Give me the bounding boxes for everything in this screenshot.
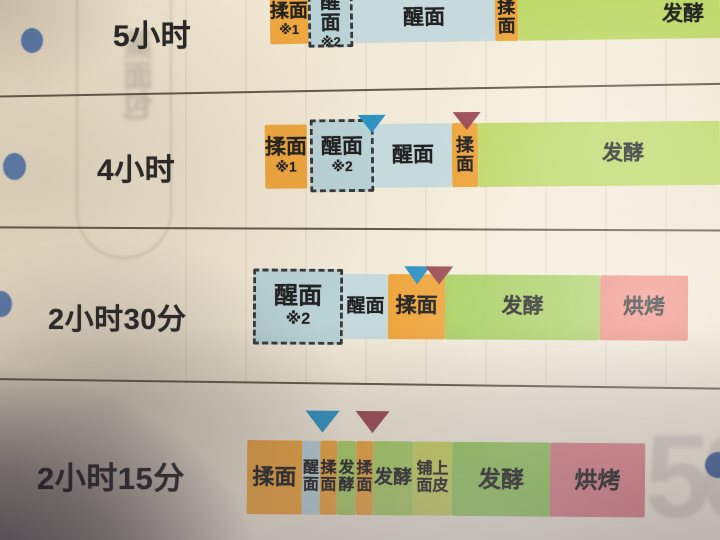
blue-triangle-marker bbox=[305, 411, 339, 433]
segment-knead: 揉 面 bbox=[356, 441, 374, 515]
segment-label: 醒面 bbox=[392, 144, 434, 166]
red-triangle-marker bbox=[355, 411, 389, 433]
segment-label: 烘烤 bbox=[623, 297, 665, 319]
segment-ferment: 发酵 bbox=[445, 274, 600, 340]
segment-knead: 揉面 bbox=[247, 440, 303, 514]
timeline-rows: 5小时揉面※1醒面※2醒面揉 面发酵4小时揉面※1醒面※2醒面揉 面发酵2小时3… bbox=[0, 0, 720, 540]
segment-label: 发酵 bbox=[478, 467, 524, 492]
segment-label: 醒 面 bbox=[303, 461, 319, 495]
segment-label: 揉 面 bbox=[456, 136, 474, 174]
segment-lay-dough-skin: 铺上 面皮 bbox=[413, 441, 453, 515]
segment-rest: 醒面 bbox=[353, 0, 496, 43]
segment-label: 醒面 bbox=[403, 7, 445, 30]
segment-ferment: 发酵 bbox=[452, 442, 551, 517]
blue-triangle-marker bbox=[358, 115, 386, 133]
segment-label: 揉面 bbox=[270, 2, 308, 22]
segment-label: 烘烤 bbox=[574, 468, 620, 493]
segment-knead: 揉 面 bbox=[320, 441, 338, 515]
segment-label: 发 酵 bbox=[338, 461, 354, 495]
segment-knead: 揉 面 bbox=[452, 123, 479, 187]
segment-knead: 揉面※1 bbox=[265, 124, 308, 188]
row-2-hours-30-min-timeline-bar: 醒面※2醒面揉面发酵烘烤 bbox=[0, 272, 720, 341]
segment-label: 揉面 bbox=[265, 137, 307, 159]
segment-label: 揉 面 bbox=[497, 0, 516, 36]
segment-label: 揉面 bbox=[395, 296, 437, 318]
segment-rest: 醒面※2 bbox=[253, 268, 343, 344]
row-5-hours-timeline-bar: 揉面※1醒面※2醒面揉 面发酵 bbox=[0, 0, 720, 48]
segment-knead: 揉 面 bbox=[495, 0, 519, 41]
segment-footnote: ※2 bbox=[321, 34, 341, 51]
red-triangle-marker bbox=[453, 112, 481, 130]
row-2-hours-15-min-timeline-bar: 揉面醒 面揉 面发 酵揉 面发酵铺上 面皮发酵烘烤 bbox=[0, 438, 720, 518]
segment-label: 发酵 bbox=[374, 468, 412, 488]
segment-ferment: 发 酵 bbox=[337, 441, 357, 515]
segment-label: 醒面 bbox=[346, 296, 384, 316]
row-4-hours-timeline-bar: 揉面※1醒面※2醒面揉 面发酵 bbox=[0, 121, 720, 191]
manual-page-photo: 蒸面包 50 5小时揉面※1醒面※2醒面揉 面发酵4小时揉面※1醒面※2醒面揉 … bbox=[0, 0, 720, 540]
segment-label: 发酵 bbox=[501, 296, 543, 318]
segment-label: 醒面 bbox=[311, 0, 351, 35]
segment-label: 揉 面 bbox=[356, 461, 372, 495]
segment-footnote: ※2 bbox=[286, 309, 311, 329]
segment-bake: 烘烤 bbox=[600, 275, 688, 340]
segment-label: 揉面 bbox=[252, 466, 296, 489]
segment-rest: 醒面 bbox=[374, 123, 453, 188]
segment-rest: 醒面 bbox=[343, 274, 388, 339]
segment-rest: 醒 面 bbox=[302, 440, 321, 514]
segment-ferment: 发酵 bbox=[518, 0, 720, 41]
segment-label: 铺上 面皮 bbox=[416, 462, 448, 496]
segment-rest: 醒面※2 bbox=[308, 0, 354, 48]
segment-footnote: ※1 bbox=[279, 22, 299, 39]
red-triangle-marker bbox=[425, 266, 453, 284]
segment-ferment: 发酵 bbox=[373, 441, 414, 515]
segment-knead: 揉面※1 bbox=[270, 0, 309, 44]
segment-label: 醒面 bbox=[274, 284, 322, 309]
segment-label: 发酵 bbox=[602, 142, 644, 164]
segment-footnote: ※1 bbox=[275, 159, 297, 177]
segment-bake: 烘烤 bbox=[550, 443, 646, 518]
segment-footnote: ※2 bbox=[331, 158, 353, 176]
segment-label: 醒面 bbox=[321, 136, 363, 158]
segment-label: 发酵 bbox=[662, 3, 704, 26]
segment-label: 揉 面 bbox=[320, 461, 336, 495]
segment-ferment: 发酵 bbox=[478, 121, 720, 187]
